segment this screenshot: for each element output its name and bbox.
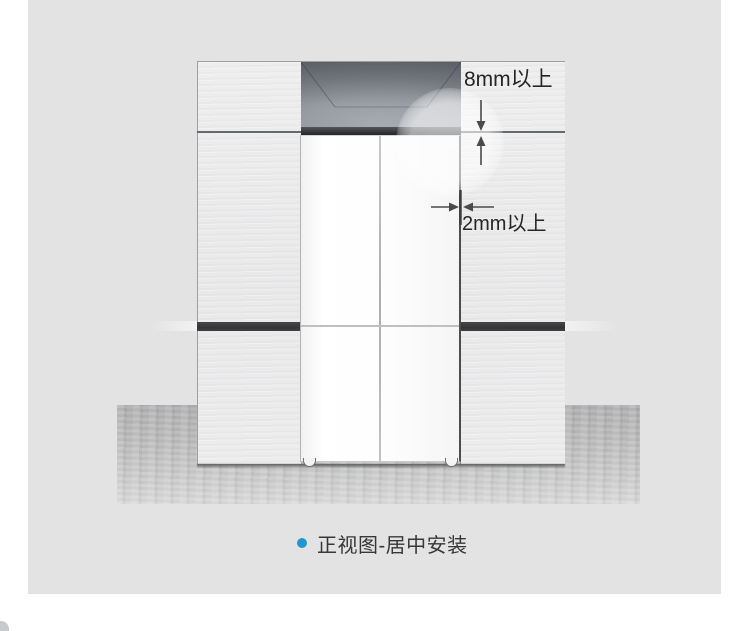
- next-section-corner: [0, 621, 9, 631]
- cabinet-dark-band-left: [197, 322, 301, 331]
- caption-bullet-icon: [297, 538, 307, 548]
- caption: 正视图-居中安装: [297, 529, 468, 557]
- caption-text: 正视图-居中安装: [317, 529, 468, 558]
- band-reflection-left: [150, 321, 197, 331]
- cabinet-dark-band-right: [460, 322, 565, 331]
- fridge-door-seam-vertical: [379, 136, 381, 461]
- cabinet-floor-shadow: [197, 464, 565, 468]
- cabinet-left-panel: [198, 62, 302, 464]
- side-clearance-label: 2mm以上: [462, 212, 546, 236]
- band-reflection-right: [565, 321, 620, 331]
- highlight-circle: [396, 88, 504, 196]
- fridge-door-seam-horizontal: [301, 325, 459, 327]
- top-clearance-label: 8mm以上: [464, 68, 553, 92]
